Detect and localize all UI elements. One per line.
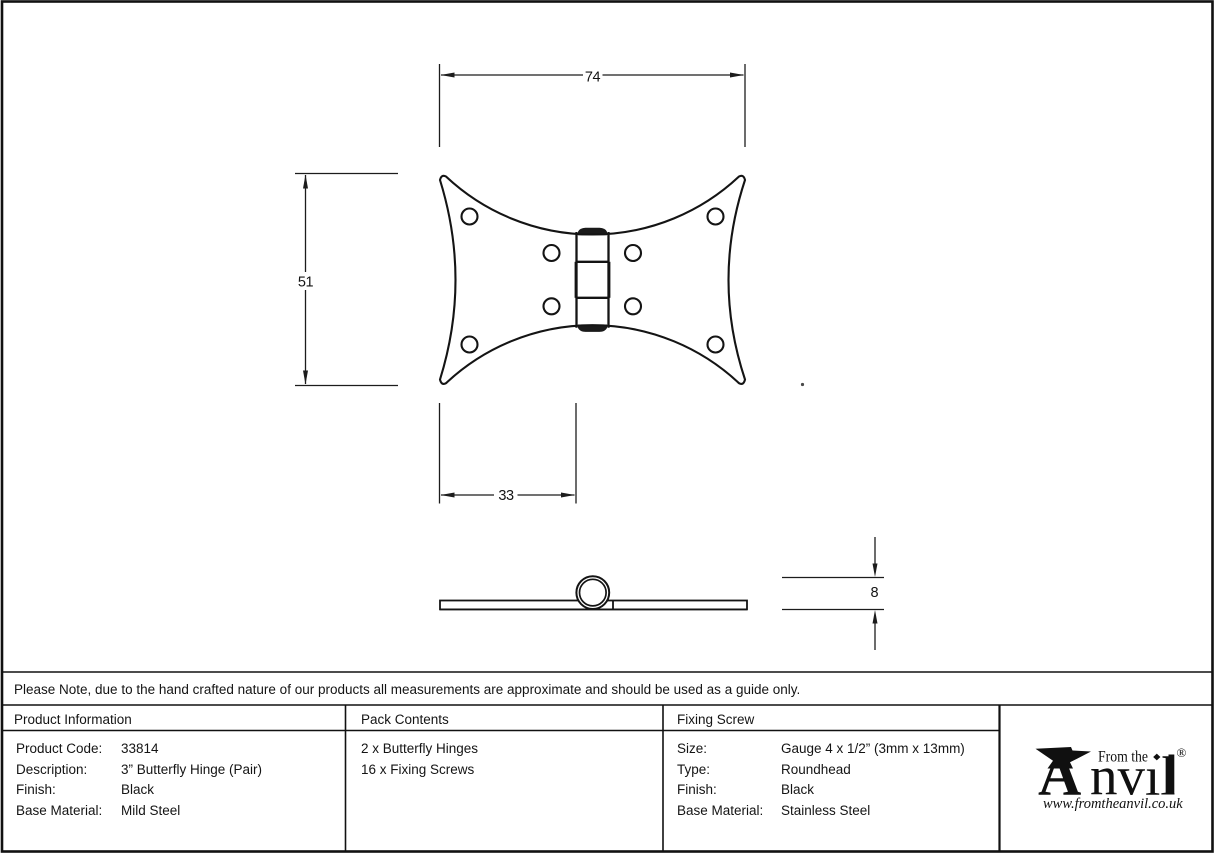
svg-text:33: 33	[498, 488, 514, 504]
svg-text:www.fromtheanvil.co.uk: www.fromtheanvil.co.uk	[1043, 796, 1183, 812]
svg-text:51: 51	[298, 275, 314, 291]
svg-text:®: ®	[1177, 745, 1187, 760]
svg-text:74: 74	[585, 69, 601, 85]
svg-text:8: 8	[870, 585, 878, 601]
